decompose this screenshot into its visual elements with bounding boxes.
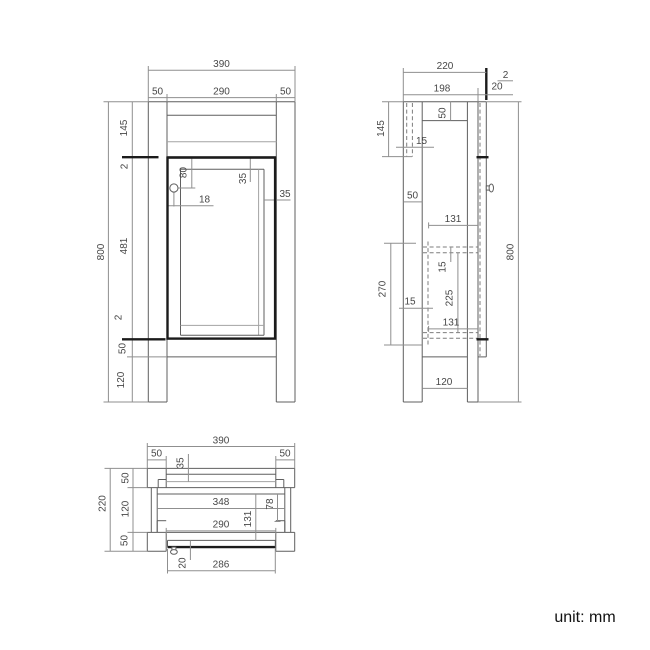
dim-top-total-width: 390	[213, 436, 230, 447]
cabinet-dimension-drawing: 390 50 290 50 800 145 2 481 2 50 120 80 …	[0, 0, 650, 650]
dim-front-left-post: 50	[152, 87, 164, 98]
dim-top-door-width: 286	[213, 560, 230, 571]
dim-top-runner-depth: 78	[265, 498, 276, 510]
dim-front-bottom-rail: 50	[118, 343, 129, 355]
dim-front-right-post: 50	[280, 87, 292, 98]
dim-side-shelf-depth-lower: 131	[443, 318, 460, 329]
dim-front-leg-height: 120	[116, 371, 127, 388]
dim-side-top-rail-depth: 50	[438, 107, 449, 119]
dim-side-body-depth: 198	[434, 84, 451, 95]
dim-top-interior-depth: 131	[243, 510, 254, 527]
dim-side-shelf-gap: 225	[445, 289, 456, 306]
dim-top-left-leg: 50	[151, 449, 163, 460]
dim-front-handle-from-top: 80	[179, 167, 190, 179]
dim-top-interior-width: 348	[213, 497, 230, 508]
top-view: 390 50 50 35 220 50 120 50 348 78 131 29…	[98, 436, 291, 571]
dim-side-back-panel: 15	[416, 136, 428, 147]
dim-front-total-width: 390	[213, 59, 230, 70]
dim-top-door-thickness: 20	[178, 557, 189, 569]
dim-front-top-gap: 2	[120, 163, 131, 169]
dim-front-top-section: 145	[119, 119, 130, 136]
dim-front-total-height: 800	[96, 243, 107, 260]
dim-top-back-rail: 35	[176, 457, 187, 469]
dim-front-handle-inset: 18	[199, 195, 211, 206]
dim-side-top-section: 145	[376, 120, 387, 137]
door-knob-side	[489, 184, 493, 192]
dim-side-shelf-depth-upper: 131	[445, 214, 462, 225]
dim-top-middle-depth: 120	[121, 500, 132, 517]
dim-side-side-panel: 15	[404, 297, 416, 308]
dim-top-total-depth: 220	[98, 495, 109, 512]
unit-label: unit: mm	[554, 609, 615, 626]
dim-side-door-thickness: 20	[491, 82, 503, 93]
dim-front-door-height: 481	[119, 237, 130, 254]
technical-drawing-page: 390 50 290 50 800 145 2 481 2 50 120 80 …	[0, 0, 650, 650]
dim-side-interior-height: 270	[378, 280, 389, 297]
dim-front-bottom-gap: 2	[114, 314, 125, 320]
dim-side-total-depth: 220	[437, 61, 454, 72]
door-knob-top	[171, 550, 178, 555]
side-view: 220 198 2 20 145 15 50 50 131 15 225 131…	[376, 61, 517, 388]
dim-front-frame-side: 35	[279, 189, 291, 200]
dim-top-back-leg-depth: 50	[121, 472, 132, 484]
dim-side-leg-spacing: 120	[436, 377, 453, 388]
dim-top-right-leg: 50	[279, 449, 291, 460]
dim-top-front-leg-depth: 50	[120, 535, 131, 547]
dim-front-frame-top: 35	[238, 173, 249, 185]
door-knob-front	[170, 184, 178, 192]
dim-side-shelf-thickness: 15	[438, 261, 449, 273]
dim-front-opening-width: 290	[213, 87, 230, 98]
dim-side-leg-depth: 50	[407, 191, 419, 202]
dim-side-total-height: 800	[506, 243, 517, 260]
dim-top-opening-width: 290	[213, 520, 230, 531]
dim-side-door-gap: 2	[503, 70, 509, 81]
